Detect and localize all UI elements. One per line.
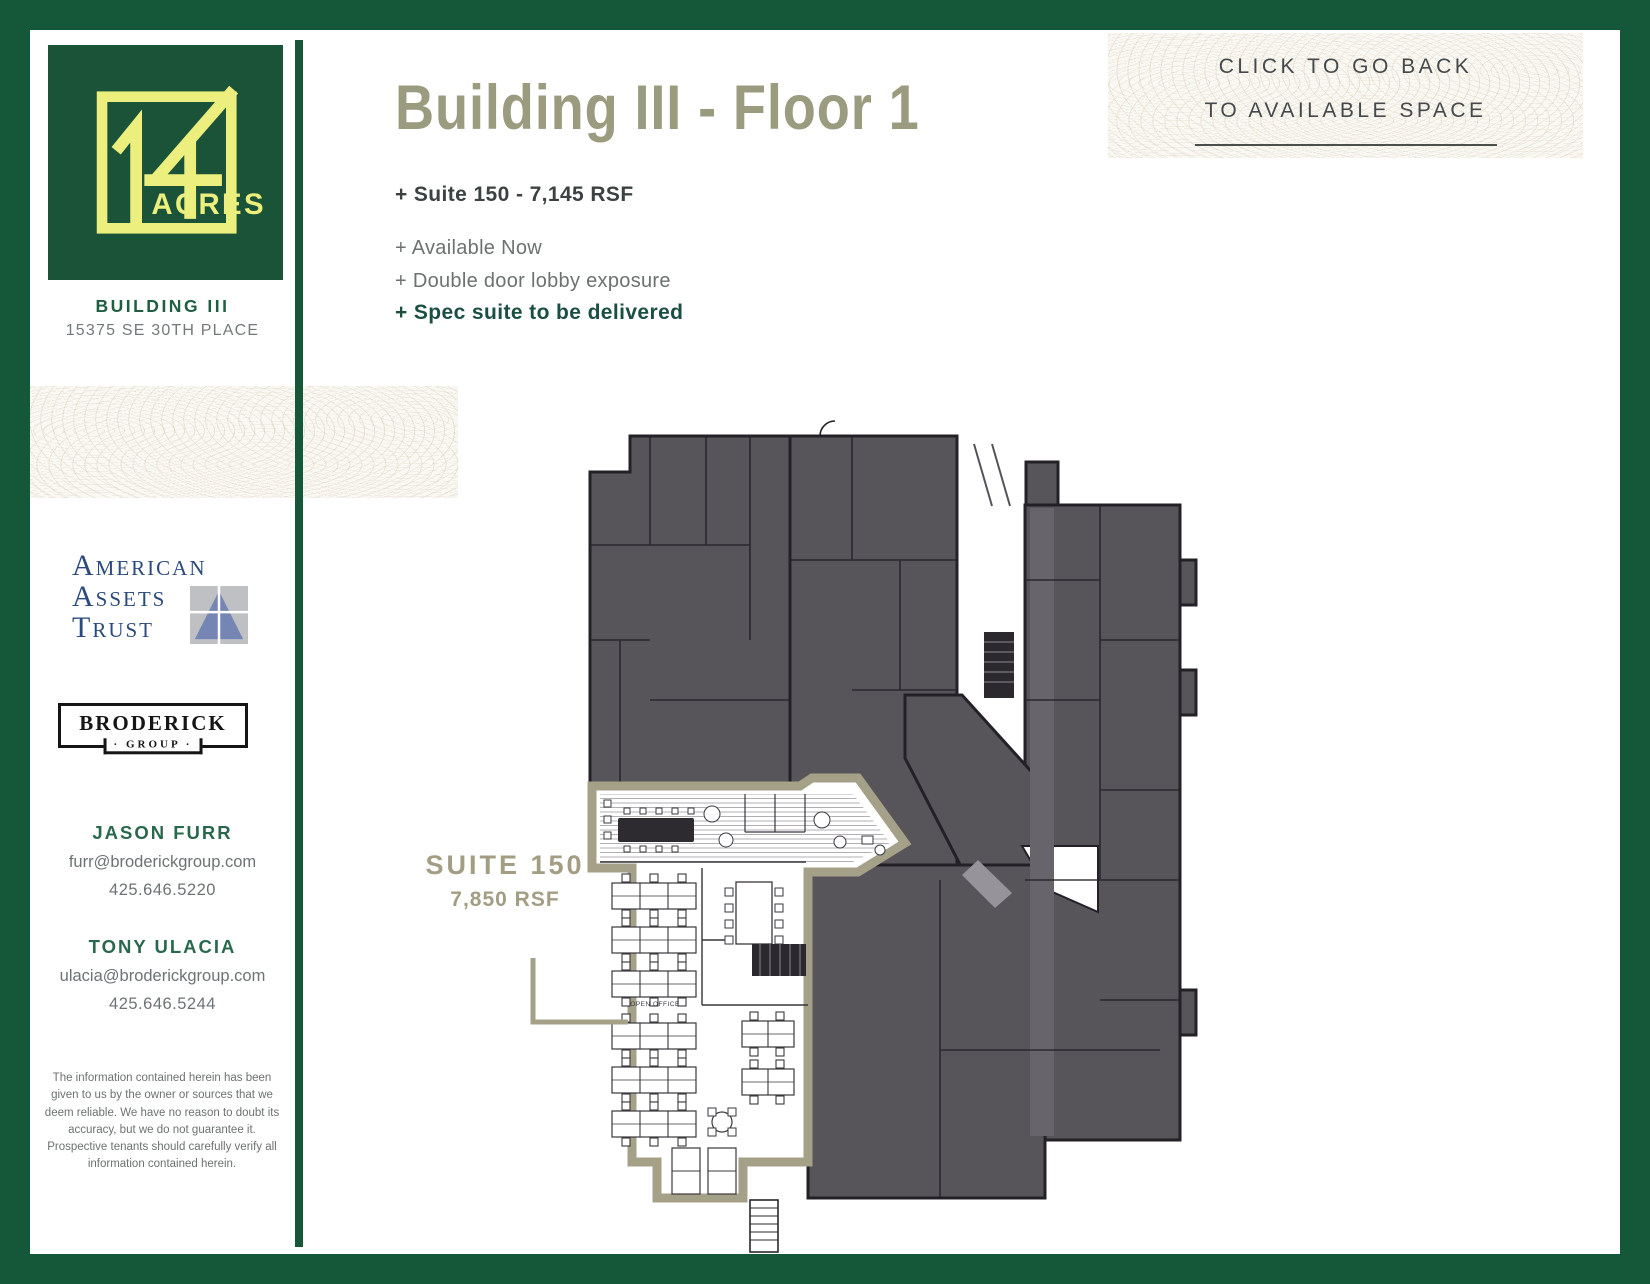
page-frame-top xyxy=(0,0,1650,30)
legal-disclaimer: The information contained herein has bee… xyxy=(42,1070,282,1174)
broderick-logo-box: BRODERICK · GROUP · xyxy=(58,703,248,748)
aat-triangle-icon xyxy=(190,586,248,644)
floor-plan: OPEN OFFICE xyxy=(420,390,1205,1270)
page-frame-left xyxy=(0,0,30,1284)
contact-phone: 425.646.5220 xyxy=(30,881,295,900)
acres-wordmark: ACRES xyxy=(151,188,266,221)
sidebar-divider xyxy=(295,40,303,1247)
back-link-line2: TO AVAILABLE SPACE xyxy=(1108,89,1583,133)
woodgrain-texture-left xyxy=(30,386,458,498)
fourteen-acres-logo-icon: ACRES xyxy=(48,45,283,280)
back-to-available-space-link[interactable]: CLICK TO GO BACK TO AVAILABLE SPACE xyxy=(1108,45,1583,146)
contact-phone: 425.646.5244 xyxy=(30,995,295,1014)
suite-rsf-label: 7,850 RSF xyxy=(420,888,590,912)
contact-jason-furr: JASON FURR furr@broderickgroup.com 425.6… xyxy=(30,822,295,900)
fourteen-acres-logo: ACRES xyxy=(48,45,283,280)
flyer-page: ACRES BUILDING III 15375 SE 30TH PLACE A… xyxy=(0,0,1650,1284)
bullet-lobby: + Double door lobby exposure xyxy=(395,270,671,293)
back-link-line1: CLICK TO GO BACK xyxy=(1108,45,1583,89)
page-title: Building III - Floor 1 xyxy=(395,72,920,144)
page-frame-right xyxy=(1620,0,1650,1284)
page-frame-bottom xyxy=(0,1254,1650,1284)
contact-name: JASON FURR xyxy=(30,822,295,844)
bullet-available: + Available Now xyxy=(395,237,542,260)
building-name: BUILDING III xyxy=(30,296,295,317)
contact-tony-ulacia: TONY ULACIA ulacia@broderickgroup.com 42… xyxy=(30,936,295,1014)
contact-email-link[interactable]: furr@broderickgroup.com xyxy=(30,853,295,872)
bullet-suite-rsf: + Suite 150 - 7,145 RSF xyxy=(395,183,634,207)
broderick-group-logo: BRODERICK · GROUP · xyxy=(58,703,248,748)
suite-150-callout: SUITE 150 7,850 RSF xyxy=(420,850,590,912)
broderick-group-tab: · GROUP · xyxy=(104,738,203,754)
american-assets-trust-logo: American Assets Trust xyxy=(72,550,272,662)
contact-email-link[interactable]: ulacia@broderickgroup.com xyxy=(30,967,295,986)
building-address: 15375 SE 30TH PLACE xyxy=(30,322,295,340)
aat-line-american: American xyxy=(72,550,272,581)
broderick-name: BRODERICK xyxy=(69,711,237,736)
back-link-underline xyxy=(1195,144,1497,146)
suite-label: SUITE 150 xyxy=(420,850,590,881)
contact-name: TONY ULACIA xyxy=(30,936,295,958)
open-office-label: OPEN OFFICE xyxy=(630,1001,680,1008)
bullet-spec-suite: + Spec suite to be delivered xyxy=(395,301,683,325)
